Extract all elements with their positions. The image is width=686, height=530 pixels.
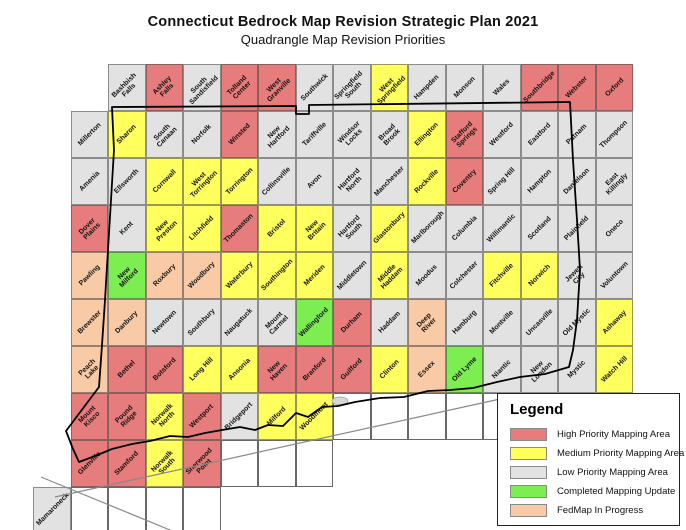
quad-cell-niantic: Niantic [483,346,521,393]
quad-label: Coventry [449,166,479,196]
quad-label: Windsor Locks [334,117,369,152]
ocean-cell [221,440,259,487]
legend-swatch-high [510,428,547,441]
quad-cell-hartford-north: Hartford North [333,158,371,205]
quad-label: Tolland Center [222,70,257,105]
quad-label: New London [522,352,557,387]
ocean-cell [408,393,446,440]
quad-cell-rockville: Rockville [408,158,446,205]
quad-label: Haddam [374,307,404,337]
quad-cell-willimantic: Willimantic [483,205,521,252]
quad-label: East Killingly [597,164,632,199]
quad-label: Spring Hill [487,166,517,196]
page-subtitle: Quadrangle Map Revision Priorities [0,32,686,47]
quad-cell-norwalk-north: Norwalk North [146,393,184,440]
quad-cell-hampton: Hampton [521,158,559,205]
legend-title: Legend [510,401,679,418]
quad-label: West Springfield [371,70,407,106]
quad-cell-winsted: Winsted [221,111,259,158]
quad-label: Litchfield [187,213,217,243]
quad-cell-kent: Kent [108,205,146,252]
quad-label: Niantic [487,354,517,384]
quad-label: Kent [112,213,142,243]
legend-swatch-completed [510,485,547,498]
quad-cell-windsor-locks: Windsor Locks [333,111,371,158]
page-title: Connecticut Bedrock Map Revision Strateg… [0,14,686,30]
quad-label: New Haven [259,352,294,387]
quad-label: Torrington [224,166,254,196]
quad-cell-middletown: Middletown [333,252,371,299]
quad-label: Wales [487,72,517,102]
ocean-cell [146,487,184,530]
quad-cell-sherwood-point: Sherwood Point [183,440,221,487]
quad-label: Mystic [562,354,592,384]
quad-label: Ansonia [224,354,254,384]
quad-cell-coventry: Coventry [446,158,484,205]
quad-cell-plainfield: Plainfield [558,205,596,252]
quad-label: Old Mystic [562,307,592,337]
quad-label: Sherwood Point [184,446,219,481]
quad-cell-springfield-south: Springfield South [333,64,371,111]
quad-cell-uncasville: Uncasville [521,299,559,346]
quad-cell-roxbury: Roxbury [146,252,184,299]
quad-cell-glastonbury: Glastonbury [371,205,409,252]
legend-item-completed: Completed Mapping Update [510,482,679,501]
quad-cell-marlborough: Marlborough [408,205,446,252]
quad-label: Norwalk South [147,446,182,481]
quad-label: Danielson [562,166,592,196]
quad-cell-montville: Montville [483,299,521,346]
quad-cell-litchfield: Litchfield [183,205,221,252]
quad-cell-haddam: Haddam [371,299,409,346]
quad-cell-milford: Milford [258,393,296,440]
quad-cell-cornwall: Cornwall [146,158,184,205]
quad-label: Uncasville [524,307,554,337]
quad-cell-stafford-springs: Stafford Springs [446,111,484,158]
quad-label: Sharon [112,119,142,149]
quad-cell-hamburg: Hamburg [446,299,484,346]
legend-label: FedMap In Progress [557,505,643,516]
quad-label: Hampton [524,166,554,196]
quad-cell-meriden: Meriden [296,252,334,299]
quad-cell-ansonia: Ansonia [221,346,259,393]
quad-label: Norwich [524,260,554,290]
quad-label: Southbridge [523,71,556,104]
quad-cell-millerton: Millerton [71,111,109,158]
quad-label: Middletown [336,259,368,291]
quad-label: South Canaan [147,117,182,152]
quad-label: Montville [487,307,517,337]
quad-label: Manchester [373,165,405,197]
quad-cell-scotland: Scotland [521,205,559,252]
quad-cell-naugatuck: Naugatuck [221,299,259,346]
quad-label: Tariffville [299,119,329,149]
quad-cell-south-sandisfield: South Sandisfield [183,64,221,111]
quad-label: Moodus [412,260,442,290]
quad-cell-columbia: Columbia [446,205,484,252]
quad-cell-amenia: Amenia [71,158,109,205]
quad-label: Newtown [149,307,179,337]
quad-label: Stamford [112,448,142,478]
quad-label: Winsted [224,119,254,149]
quad-label: Scotland [524,213,554,243]
quad-label: Southbury [187,307,217,337]
ocean-cell [183,487,221,530]
ocean-cell [446,393,484,440]
quad-label: Danbury [112,307,142,337]
quad-label: Naugatuck [224,307,254,337]
quad-label: Oxford [599,72,629,102]
quad-label: Durham [337,307,367,337]
quad-cell-west-springfield: West Springfield [371,64,409,111]
quad-label: Meriden [299,260,329,290]
legend-swatch-low [510,466,547,479]
legend-label: Medium Priority Mapping Area [557,448,684,459]
quad-label: Avon [299,166,329,196]
quad-cell-new-milford: New Milford [108,252,146,299]
quad-label: Marlborough [410,212,443,245]
quad-label: Waterbury [224,260,254,290]
legend-item-high: High Priority Mapping Area [510,425,679,444]
quad-cell-thompson: Thompson [596,111,634,158]
quad-label: Millerton [74,119,104,149]
quad-label: Springfield South [334,70,370,106]
quad-label: Glenville [74,448,104,478]
quad-cell-ellsworth: Ellsworth [108,158,146,205]
quad-cell-bashbish-falls: Bashbish Falls [108,64,146,111]
quad-label: Collinsville [261,166,292,197]
quad-cell-norwich: Norwich [521,252,559,299]
quad-label: Woodbury [187,260,217,290]
quad-label: Mount Carmel [259,305,294,340]
quad-label: Mamaroneck [35,494,68,527]
legend-label: Low Priority Mapping Area [557,467,668,478]
quad-label: West Granville [259,70,294,105]
quad-cell-bristol: Bristol [258,205,296,252]
quad-cell-west-granville: West Granville [258,64,296,111]
quad-cell-ashaway: Ashaway [596,299,634,346]
quad-label: Monson [449,72,479,102]
quad-cell-new-britain: New Britain [296,205,334,252]
quad-label: Peach Lake [72,352,107,387]
quad-label: Rockville [412,166,442,196]
ocean-cell [371,393,409,440]
quad-cell-norfolk: Norfolk [183,111,221,158]
legend-item-low: Low Priority Mapping Area [510,463,679,482]
quad-cell-broad-brook: Broad Brook [371,111,409,158]
quad-label: Voluntown [599,260,629,290]
quad-label: Fitchville [487,260,517,290]
quad-cell-southbridge: Southbridge [521,64,559,111]
quad-cell-middle-haddam: Middle Haddam [371,252,409,299]
quad-label: Woodmont [299,401,330,432]
quad-label: Milford [262,401,292,431]
quad-cell-branford: Branford [296,346,334,393]
quad-label: Hartford North [334,164,369,199]
quad-cell-durham: Durham [333,299,371,346]
quad-cell-danbury: Danbury [108,299,146,346]
quad-cell-newtown: Newtown [146,299,184,346]
quad-cell-monson: Monson [446,64,484,111]
quad-cell-jewett-city: Jewett City [558,252,596,299]
quad-cell-mount-kisco: Mount Kisco [71,393,109,440]
quad-label: Mount Kisco [72,399,107,434]
quad-cell-watch-hill: Watch Hill [596,346,634,393]
ocean-cell [71,487,109,530]
quad-label: Dover Plains [72,211,107,246]
quad-label: Colchester [449,260,480,291]
quad-cell-avon: Avon [296,158,334,205]
quad-cell-clinton: Clinton [371,346,409,393]
quad-cell-essex: Essex [408,346,446,393]
quad-label: Bashbish Falls [109,70,144,105]
quad-cell-ashley-falls: Ashley Falls [146,64,184,111]
quad-cell-dover-plains: Dover Plains [71,205,109,252]
quad-cell-bridgeport: Bridgeport [221,393,259,440]
quad-cell-hampden: Hampden [408,64,446,111]
quad-cell-pound-ridge: Pound Ridge [108,393,146,440]
quad-cell-botsford: Botsford [146,346,184,393]
quad-label: Wallingford [298,307,330,339]
quad-cell-collinsville: Collinsville [258,158,296,205]
legend-box: Legend High Priority Mapping AreaMedium … [497,393,680,526]
quad-cell-pawling: Pawling [71,252,109,299]
ocean-cell [296,440,334,487]
ocean-cell [333,393,371,440]
quad-label: New Preston [147,211,182,246]
quad-label: Putnam [562,119,592,149]
quad-cell-brewster: Brewster [71,299,109,346]
quad-cell-thomaston: Thomaston [221,205,259,252]
quad-label: Pound Ridge [109,399,144,434]
quad-cell-hartford-south: Hartford South [333,205,371,252]
quad-label: Ashley Falls [147,70,182,105]
quad-cell-danielson: Danielson [558,158,596,205]
quad-label: Oneco [599,213,629,243]
quad-cell-east-killingly: East Killingly [596,158,634,205]
quad-label: Deep River [409,305,444,340]
legend-label: Completed Mapping Update [557,486,675,497]
quad-cell-wallingford: Wallingford [296,299,334,346]
quad-cell-moodus: Moodus [408,252,446,299]
quad-label: Glastonbury [373,212,406,245]
quad-label: New Milford [109,258,144,293]
quad-label: Watch Hill [599,354,629,384]
quad-cell-colchester: Colchester [446,252,484,299]
quad-label: Southwick [299,72,329,102]
quad-label: Bristol [262,213,292,243]
quad-cell-oneco: Oneco [596,205,634,252]
quad-label: Essex [412,354,442,384]
quad-cell-old-lyme: Old Lyme [446,346,484,393]
quad-label: Eastford [524,119,554,149]
quad-cell-fitchville: Fitchville [483,252,521,299]
quad-cell-eastford: Eastford [521,111,559,158]
quad-label: Thomaston [223,213,255,245]
quad-cell-woodbury: Woodbury [183,252,221,299]
legend-swatch-fedmap [510,504,547,517]
quad-cell-long-hill: Long Hill [183,346,221,393]
quad-label: Hampden [412,72,442,102]
quad-label: Hartford South [334,211,369,246]
quad-cell-ellington: Ellington [408,111,446,158]
quad-cell-old-mystic: Old Mystic [558,299,596,346]
legend-item-fedmap: FedMap In Progress [510,501,679,520]
quad-cell-southwick: Southwick [296,64,334,111]
quad-label: Columbia [449,213,479,243]
quad-label: Westford [487,119,517,149]
quad-cell-woodmont: Woodmont [296,393,334,440]
quad-label: Plainfield [562,213,592,243]
quad-label: Jewett City [559,258,594,293]
quad-label: Ashaway [599,307,629,337]
quad-label: Norfolk [187,119,217,149]
quad-cell-norwalk-south: Norwalk South [146,440,184,487]
quad-cell-mamaroneck: Mamaroneck [33,487,71,530]
quad-cell-wales: Wales [483,64,521,111]
quad-cell-waterbury: Waterbury [221,252,259,299]
map-page: Bashbish FallsAshley FallsSouth Sandisfi… [0,0,686,530]
ocean-cell [258,440,296,487]
quad-label: Stafford Springs [447,117,482,152]
quad-label: New Britain [297,211,332,246]
quad-cell-putnam: Putnam [558,111,596,158]
quad-label: Guilford [337,354,367,384]
quad-cell-tariffville: Tariffville [296,111,334,158]
quad-cell-southbury: Southbury [183,299,221,346]
quad-label: Old Lyme [449,354,479,384]
quad-cell-new-haven: New Haven [258,346,296,393]
quad-label: Pawling [74,260,104,290]
quad-cell-westford: Westford [483,111,521,158]
quad-cell-new-hartford: New Hartford [258,111,296,158]
quad-label: Roxbury [149,260,179,290]
quad-label: Willimantic [486,213,517,244]
quad-label: Norwalk North [147,399,182,434]
quad-label: Amenia [74,166,104,196]
quad-cell-oxford: Oxford [596,64,634,111]
quad-cell-manchester: Manchester [371,158,409,205]
quad-label: Clinton [374,354,404,384]
quad-cell-bethel: Bethel [108,346,146,393]
quad-cell-westport: Westport [183,393,221,440]
quad-cell-southington: Southington [258,252,296,299]
quad-cell-voluntown: Voluntown [596,252,634,299]
quad-label: Cornwall [149,166,179,196]
quad-cell-guilford: Guilford [333,346,371,393]
quad-cell-south-canaan: South Canaan [146,111,184,158]
quad-label: South Sandisfield [184,69,220,105]
quad-label: Westport [187,401,217,431]
quad-label: Long Hill [187,354,217,384]
quad-label: West Torrington [184,164,219,199]
quad-cell-torrington: Torrington [221,158,259,205]
quad-cell-stamford: Stamford [108,440,146,487]
quad-cell-deep-river: Deep River [408,299,446,346]
quad-label: Southington [260,259,293,292]
quad-cell-west-torrington: West Torrington [183,158,221,205]
quad-cell-glenville: Glenville [71,440,109,487]
quad-label: New Hartford [259,117,294,152]
quad-label: Brewster [74,307,104,337]
quad-cell-peach-lake: Peach Lake [71,346,109,393]
quad-label: Bridgeport [224,401,254,431]
quad-label: Thompson [599,119,629,149]
quad-cell-new-preston: New Preston [146,205,184,252]
quad-label: Ellsworth [112,166,142,196]
quad-label: Bethel [112,354,142,384]
quad-cell-tolland-center: Tolland Center [221,64,259,111]
quad-cell-webster: Webster [558,64,596,111]
legend-swatch-medium [510,447,547,460]
quad-cell-mystic: Mystic [558,346,596,393]
ocean-cell [108,487,146,530]
quad-label: Middle Haddam [372,258,407,293]
quad-label: Webster [562,72,592,102]
quad-label: Branford [299,354,329,384]
quad-label: Botsford [149,354,179,384]
quad-cell-spring-hill: Spring Hill [483,158,521,205]
legend-label: High Priority Mapping Area [557,429,670,440]
quad-cell-new-london: New London [521,346,559,393]
legend-item-medium: Medium Priority Mapping Area [510,444,679,463]
quad-label: Broad Brook [372,117,407,152]
quad-cell-sharon: Sharon [108,111,146,158]
quad-cell-mount-carmel: Mount Carmel [258,299,296,346]
legend-items: High Priority Mapping AreaMedium Priorit… [510,425,679,520]
map-titles: Connecticut Bedrock Map Revision Strateg… [0,14,686,47]
quad-label: Hamburg [449,307,479,337]
quad-label: Ellington [412,119,442,149]
